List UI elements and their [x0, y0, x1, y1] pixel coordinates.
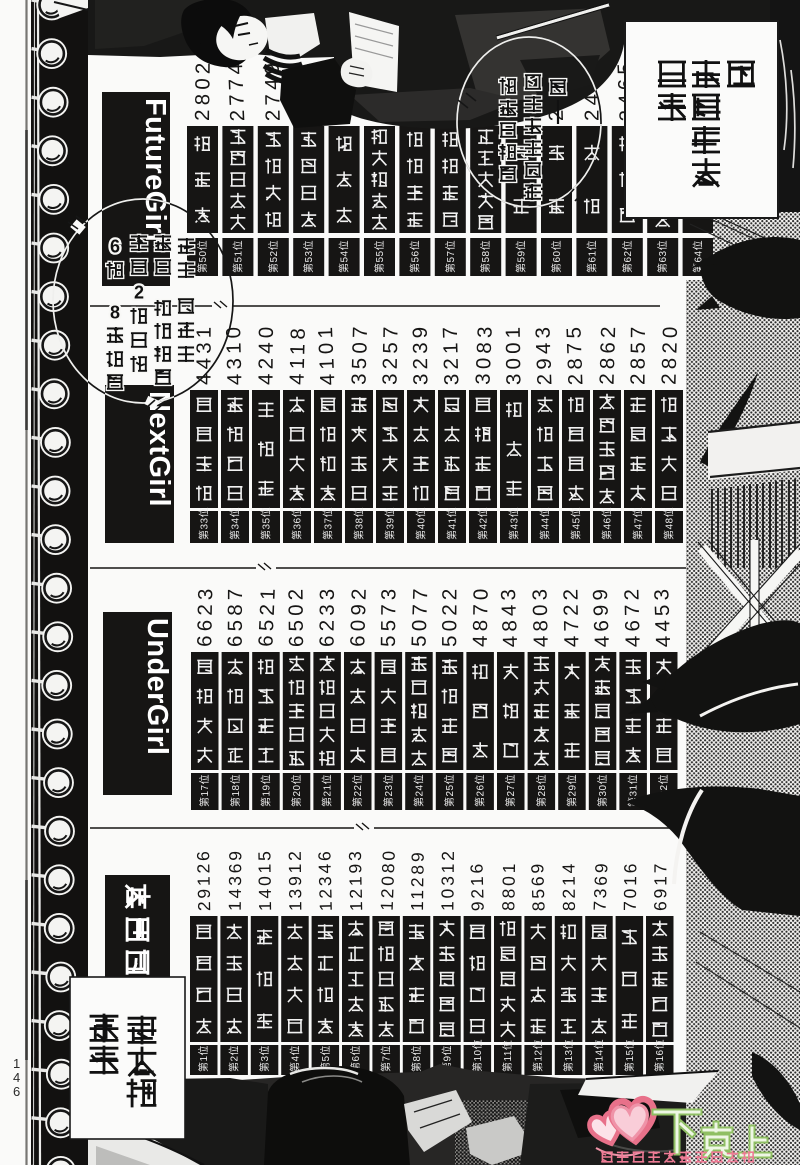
- svg-text:10312: 10312: [437, 848, 458, 911]
- svg-text:第26位: 第26位: [474, 774, 487, 807]
- svg-text:6623: 6623: [193, 584, 217, 647]
- svg-text:第14位: 第14位: [593, 1039, 606, 1072]
- svg-text:5022: 5022: [438, 584, 461, 647]
- svg-text:2: 2: [134, 283, 144, 303]
- svg-text:第22位: 第22位: [351, 774, 364, 807]
- svg-text:第33位: 第33位: [198, 507, 211, 540]
- svg-text:5573: 5573: [377, 584, 401, 647]
- svg-text:第62位: 第62位: [621, 240, 634, 273]
- svg-text:第2位: 第2位: [228, 1045, 241, 1072]
- svg-text:6502: 6502: [284, 585, 308, 648]
- svg-text:29126: 29126: [193, 848, 214, 911]
- svg-text:9216: 9216: [466, 861, 487, 912]
- svg-text:8214: 8214: [558, 861, 579, 911]
- svg-text:第53位: 第53位: [302, 240, 315, 273]
- svg-text:6587: 6587: [224, 585, 247, 647]
- svg-text:4: 4: [13, 1070, 20, 1085]
- svg-text:第7位: 第7位: [380, 1045, 393, 1072]
- svg-text:2857: 2857: [627, 322, 651, 385]
- svg-text:4699: 4699: [589, 584, 614, 647]
- svg-text:第44位: 第44位: [539, 507, 552, 540]
- svg-text:6: 6: [110, 237, 120, 257]
- svg-text:第63位: 第63位: [656, 240, 669, 273]
- svg-text:第35位: 第35位: [260, 507, 273, 540]
- svg-text:第16位: 第16位: [653, 1039, 666, 1072]
- svg-text:第18位: 第18位: [229, 774, 242, 807]
- svg-text:第58位: 第58位: [479, 240, 492, 273]
- svg-text:4843: 4843: [497, 584, 522, 647]
- svg-text:1: 1: [13, 1056, 20, 1071]
- svg-text:第38位: 第38位: [353, 507, 366, 540]
- svg-text:6521: 6521: [254, 584, 280, 647]
- svg-text:第11位: 第11位: [501, 1040, 514, 1072]
- svg-text:12193: 12193: [345, 848, 366, 911]
- svg-text:第43位: 第43位: [508, 507, 521, 540]
- svg-text:第20位: 第20位: [290, 774, 303, 807]
- svg-text:第50位: 第50位: [196, 240, 209, 273]
- svg-text:第15位: 第15位: [623, 1039, 636, 1072]
- svg-text:第39位: 第39位: [384, 507, 397, 540]
- svg-text:4240: 4240: [255, 322, 278, 385]
- svg-text:第3位: 第3位: [258, 1045, 271, 1072]
- svg-text:6917: 6917: [650, 861, 670, 911]
- svg-text:第24位: 第24位: [413, 774, 426, 807]
- svg-text:第41位: 第41位: [446, 507, 459, 540]
- svg-text:4870: 4870: [469, 584, 493, 647]
- svg-text:11289: 11289: [407, 849, 428, 911]
- svg-text:第46位: 第46位: [601, 507, 614, 540]
- svg-text:第12位: 第12位: [532, 1039, 545, 1072]
- svg-text:3217: 3217: [439, 322, 464, 385]
- svg-text:14015: 14015: [254, 848, 275, 911]
- svg-text:第57位: 第57位: [444, 240, 457, 273]
- svg-text:第1位: 第1位: [197, 1045, 210, 1072]
- svg-text:4453: 4453: [650, 584, 675, 647]
- svg-text:7016: 7016: [620, 861, 641, 911]
- svg-text:12346: 12346: [314, 848, 336, 911]
- svg-text:第28位: 第28位: [535, 774, 548, 807]
- svg-text:第25位: 第25位: [443, 774, 456, 807]
- svg-text:第13位: 第13位: [562, 1039, 575, 1072]
- svg-text:2875: 2875: [562, 322, 587, 385]
- svg-text:3239: 3239: [409, 323, 433, 386]
- svg-text:14369: 14369: [225, 848, 246, 911]
- svg-text:4803: 4803: [528, 584, 553, 647]
- svg-text:第61位: 第61位: [585, 240, 598, 273]
- svg-text:第56位: 第56位: [408, 240, 421, 273]
- svg-text:4672: 4672: [620, 584, 644, 647]
- svg-text:第30位: 第30位: [596, 774, 609, 807]
- svg-text:第34位: 第34位: [229, 507, 242, 540]
- svg-text:第37位: 第37位: [322, 507, 335, 540]
- svg-text:第48位: 第48位: [663, 507, 676, 540]
- svg-text:第23位: 第23位: [382, 774, 395, 807]
- svg-text:2862: 2862: [596, 322, 621, 385]
- svg-text:4310: 4310: [222, 322, 247, 385]
- svg-text:3257: 3257: [379, 322, 403, 385]
- svg-text:4101: 4101: [314, 322, 340, 385]
- svg-text:3083: 3083: [472, 322, 497, 385]
- svg-text:3507: 3507: [348, 322, 373, 385]
- svg-text:6: 6: [13, 1084, 20, 1099]
- svg-text:8: 8: [110, 303, 120, 323]
- svg-text:第27位: 第27位: [504, 774, 517, 807]
- svg-text:8801: 8801: [498, 861, 519, 912]
- svg-text:2943: 2943: [531, 322, 556, 385]
- svg-text:第17位: 第17位: [198, 774, 211, 807]
- svg-text:UnderGirl: UnderGirl: [141, 618, 173, 755]
- svg-text:第21位: 第21位: [321, 774, 334, 807]
- svg-text:7369: 7369: [590, 860, 612, 911]
- svg-text:第52位: 第52位: [267, 240, 280, 273]
- svg-text:第51位: 第51位: [231, 240, 244, 273]
- svg-text:5077: 5077: [408, 584, 433, 647]
- svg-text:第10位: 第10位: [471, 1039, 484, 1072]
- svg-text:第45位: 第45位: [570, 507, 583, 540]
- svg-text:第36位: 第36位: [291, 507, 304, 540]
- svg-text:第40位: 第40位: [415, 507, 428, 540]
- svg-text:12080: 12080: [377, 848, 399, 911]
- svg-text:6092: 6092: [346, 584, 371, 647]
- svg-text:2774: 2774: [224, 58, 250, 121]
- svg-text:2820: 2820: [658, 322, 683, 385]
- svg-text:6233: 6233: [316, 585, 339, 648]
- svg-text:FutureGirl: FutureGirl: [139, 98, 171, 242]
- svg-text:4118: 4118: [286, 324, 311, 385]
- svg-text:第8位: 第8位: [410, 1045, 423, 1072]
- svg-text:第4位: 第4位: [288, 1045, 301, 1072]
- svg-text:第59位: 第59位: [515, 240, 528, 273]
- svg-text:13912: 13912: [285, 848, 306, 911]
- svg-text:3001: 3001: [502, 323, 526, 386]
- svg-text:第54位: 第54位: [338, 240, 351, 273]
- svg-text:第47位: 第47位: [632, 507, 645, 540]
- svg-text:第19位: 第19位: [259, 774, 272, 807]
- svg-text:第42位: 第42位: [477, 507, 490, 540]
- svg-text:第55位: 第55位: [373, 240, 386, 273]
- svg-text:8569: 8569: [527, 861, 548, 912]
- svg-text:第60位: 第60位: [550, 240, 563, 273]
- svg-text:4722: 4722: [559, 585, 583, 648]
- svg-text:2802: 2802: [191, 58, 215, 121]
- svg-text:第29位: 第29位: [566, 774, 579, 807]
